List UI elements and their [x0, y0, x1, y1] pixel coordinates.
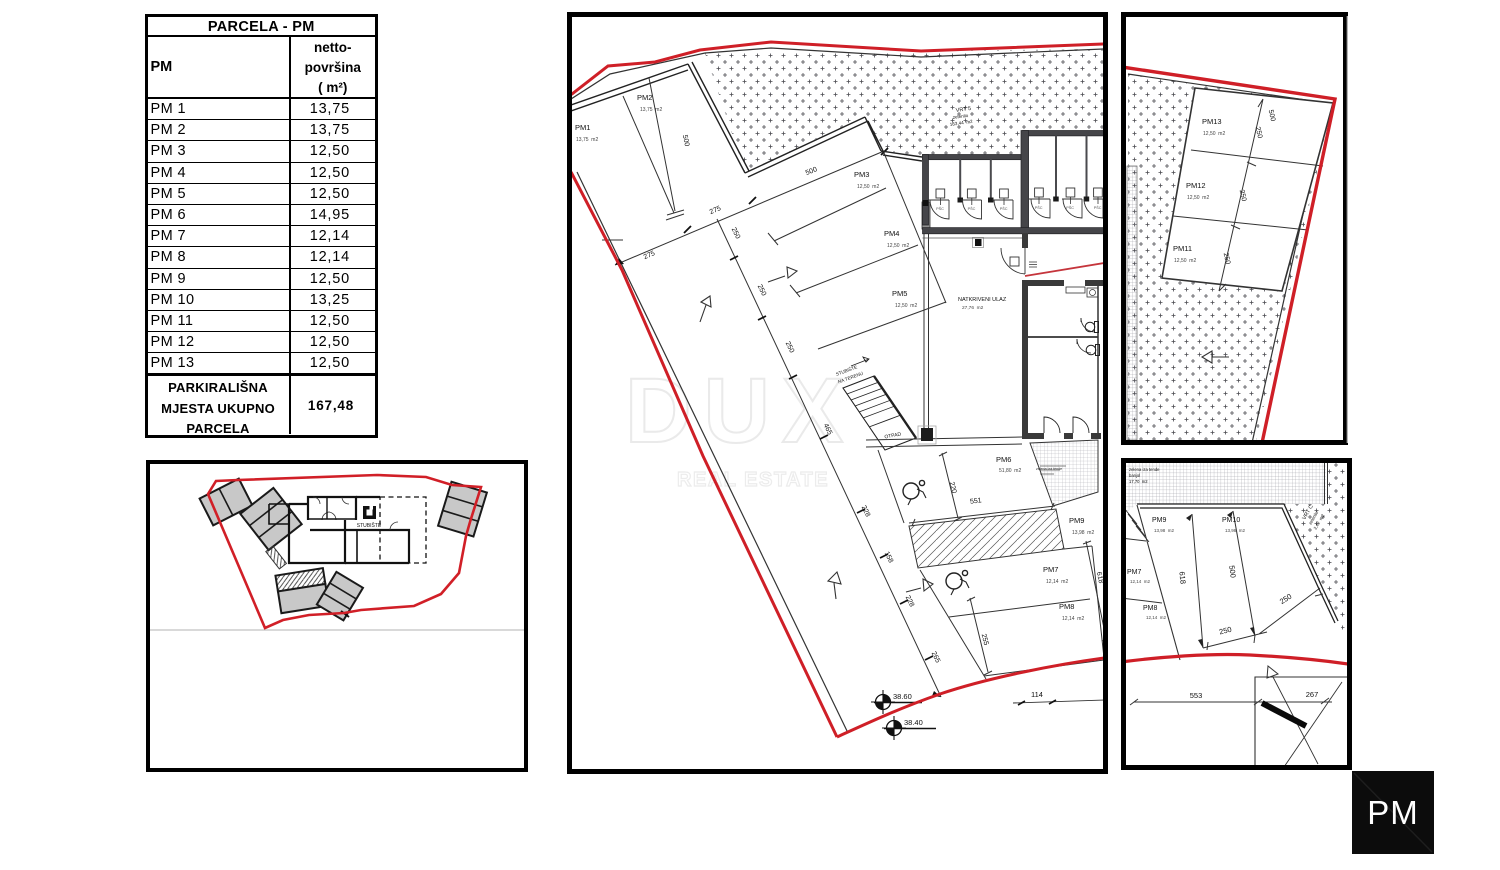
svg-text:275: 275 [709, 205, 723, 216]
svg-text:27,76 m2: 27,76 m2 [962, 305, 984, 311]
svg-text:465: 465 [822, 423, 833, 437]
svg-text:500: 500 [805, 166, 819, 177]
svg-text:PM8: PM8 [1143, 605, 1158, 612]
svg-text:PM9: PM9 [1069, 516, 1084, 525]
svg-text:13,98 m2: 13,98 m2 [1072, 530, 1094, 536]
svg-text:PM4: PM4 [884, 229, 899, 238]
svg-text:PM13: PM13 [1202, 117, 1222, 126]
svg-text:banjol: banjol [1129, 473, 1140, 478]
svg-text:17,70 m2: 17,70 m2 [1129, 479, 1148, 484]
svg-text:12,14 m2: 12,14 m2 [1046, 579, 1068, 585]
svg-text:PM11: PM11 [1173, 244, 1192, 253]
svg-text:PM7: PM7 [1043, 565, 1058, 574]
svg-text:220: 220 [948, 481, 958, 494]
svg-text:275: 275 [643, 250, 657, 261]
svg-text:250: 250 [1218, 625, 1232, 637]
svg-text:PM5: PM5 [892, 289, 907, 298]
svg-text:12,50 m2: 12,50 m2 [895, 303, 917, 309]
svg-text:PM9: PM9 [1152, 517, 1167, 524]
svg-text:553: 553 [1190, 691, 1203, 700]
svg-text:PM7: PM7 [1127, 569, 1142, 576]
svg-text:PM: PM [1367, 794, 1419, 831]
svg-text:250: 250 [756, 284, 767, 298]
svg-text:PŠC: PŠC [1000, 206, 1008, 211]
svg-text:12,14 m2: 12,14 m2 [1062, 616, 1084, 622]
svg-text:PM6: PM6 [996, 455, 1011, 464]
svg-text:551: 551 [970, 497, 983, 505]
svg-text:PŠC: PŠC [1094, 205, 1102, 210]
svg-text:PM8: PM8 [1059, 602, 1074, 611]
svg-text:267: 267 [1306, 690, 1319, 699]
svg-text:PM10: PM10 [1222, 517, 1240, 524]
svg-text:PM3: PM3 [854, 170, 869, 179]
svg-text:PM12: PM12 [1186, 181, 1206, 190]
svg-text:12,50 m2: 12,50 m2 [1187, 195, 1209, 201]
svg-text:13,75 m2: 13,75 m2 [576, 137, 598, 143]
svg-text:PŠC: PŠC [936, 206, 944, 211]
svg-text:250: 250 [730, 227, 741, 241]
svg-text:NATKRIVENI ULAZ: NATKRIVENI ULAZ [958, 297, 1007, 303]
svg-text:zelena iza tende: zelena iza tende [1129, 467, 1160, 472]
svg-text:500: 500 [681, 134, 690, 147]
svg-text:38.60: 38.60 [893, 692, 912, 701]
svg-text:12,50 m2: 12,50 m2 [857, 184, 879, 190]
svg-text:zelena iza tende: zelena iza tende [1036, 467, 1062, 471]
svg-text:STUBIŠTE: STUBIŠTE [357, 522, 382, 529]
svg-text:114: 114 [1031, 690, 1043, 699]
svg-text:12,50 m2: 12,50 m2 [1203, 131, 1225, 137]
svg-text:PŠC: PŠC [968, 206, 976, 211]
svg-text:12,14 m2: 12,14 m2 [1130, 579, 1151, 584]
svg-text:PM1: PM1 [575, 123, 590, 132]
svg-text:PM2: PM2 [637, 93, 652, 102]
svg-text:12,14 m2: 12,14 m2 [1146, 615, 1167, 620]
svg-text:12,50 m2: 12,50 m2 [1174, 258, 1196, 264]
svg-text:618: 618 [1177, 571, 1187, 584]
svg-text:51,80 m2: 51,80 m2 [999, 468, 1021, 474]
svg-text:13,98 m2: 13,98 m2 [1225, 528, 1246, 533]
svg-text:12,50 m2: 12,50 m2 [887, 243, 909, 249]
svg-text:13,75 m2: 13,75 m2 [640, 107, 662, 113]
svg-text:13,98 m2: 13,98 m2 [1154, 528, 1175, 533]
svg-text:158: 158 [883, 551, 894, 565]
svg-text:500: 500 [1227, 565, 1238, 579]
svg-text:250: 250 [784, 341, 795, 355]
svg-text:250: 250 [1278, 592, 1293, 606]
svg-text:PŠC: PŠC [1066, 205, 1074, 210]
svg-text:PŠC: PŠC [1035, 205, 1043, 210]
svg-text:38.40: 38.40 [904, 718, 923, 727]
